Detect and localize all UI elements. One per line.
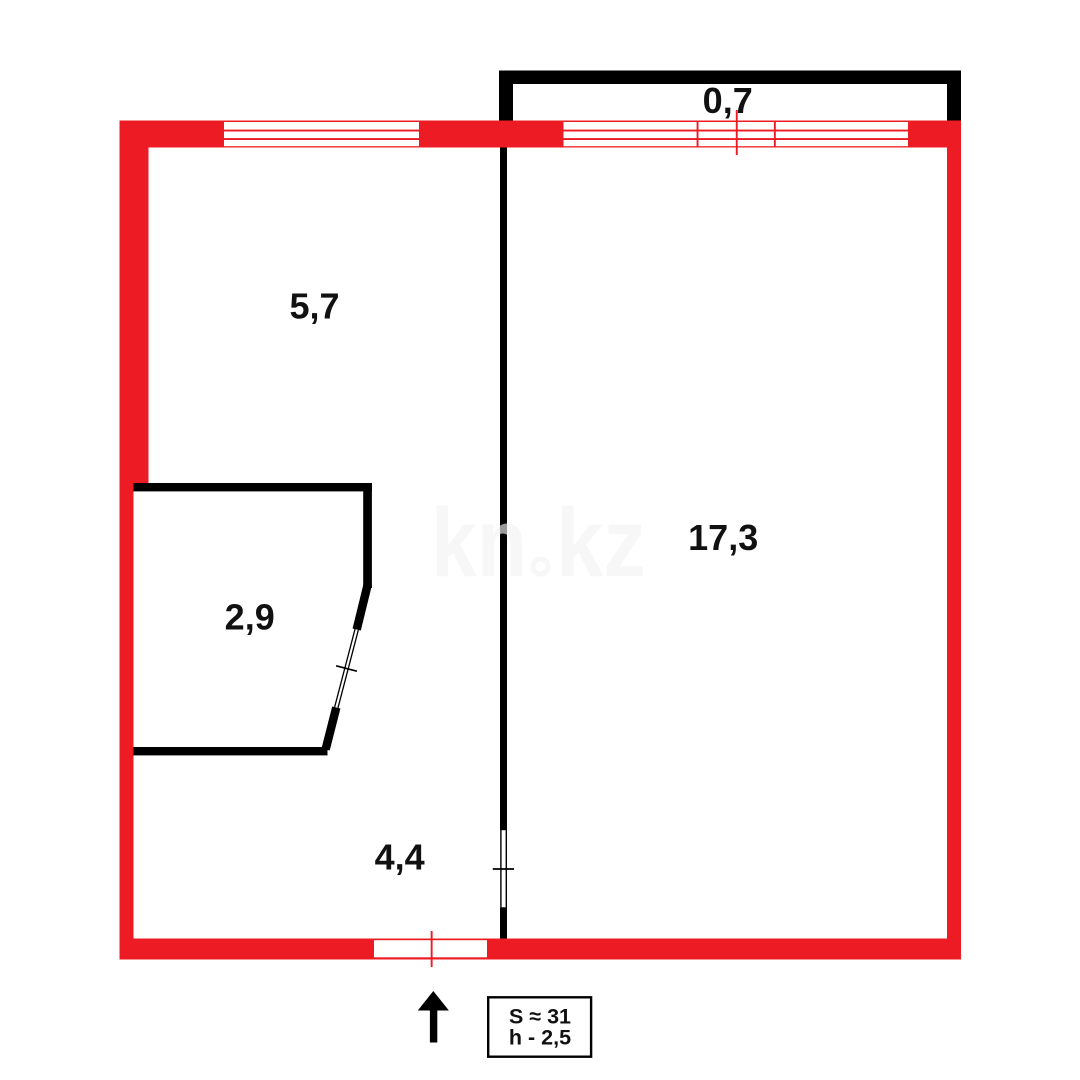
svg-text:2,9: 2,9 xyxy=(225,597,275,638)
svg-text:kz: kz xyxy=(556,488,646,597)
svg-text:4,4: 4,4 xyxy=(375,836,425,877)
svg-text:0,7: 0,7 xyxy=(703,80,753,121)
svg-text:5,7: 5,7 xyxy=(289,286,339,327)
svg-text:h - 2,5: h - 2,5 xyxy=(509,1026,571,1050)
svg-text:kn: kn xyxy=(431,488,527,597)
svg-text:17,3: 17,3 xyxy=(688,517,758,558)
